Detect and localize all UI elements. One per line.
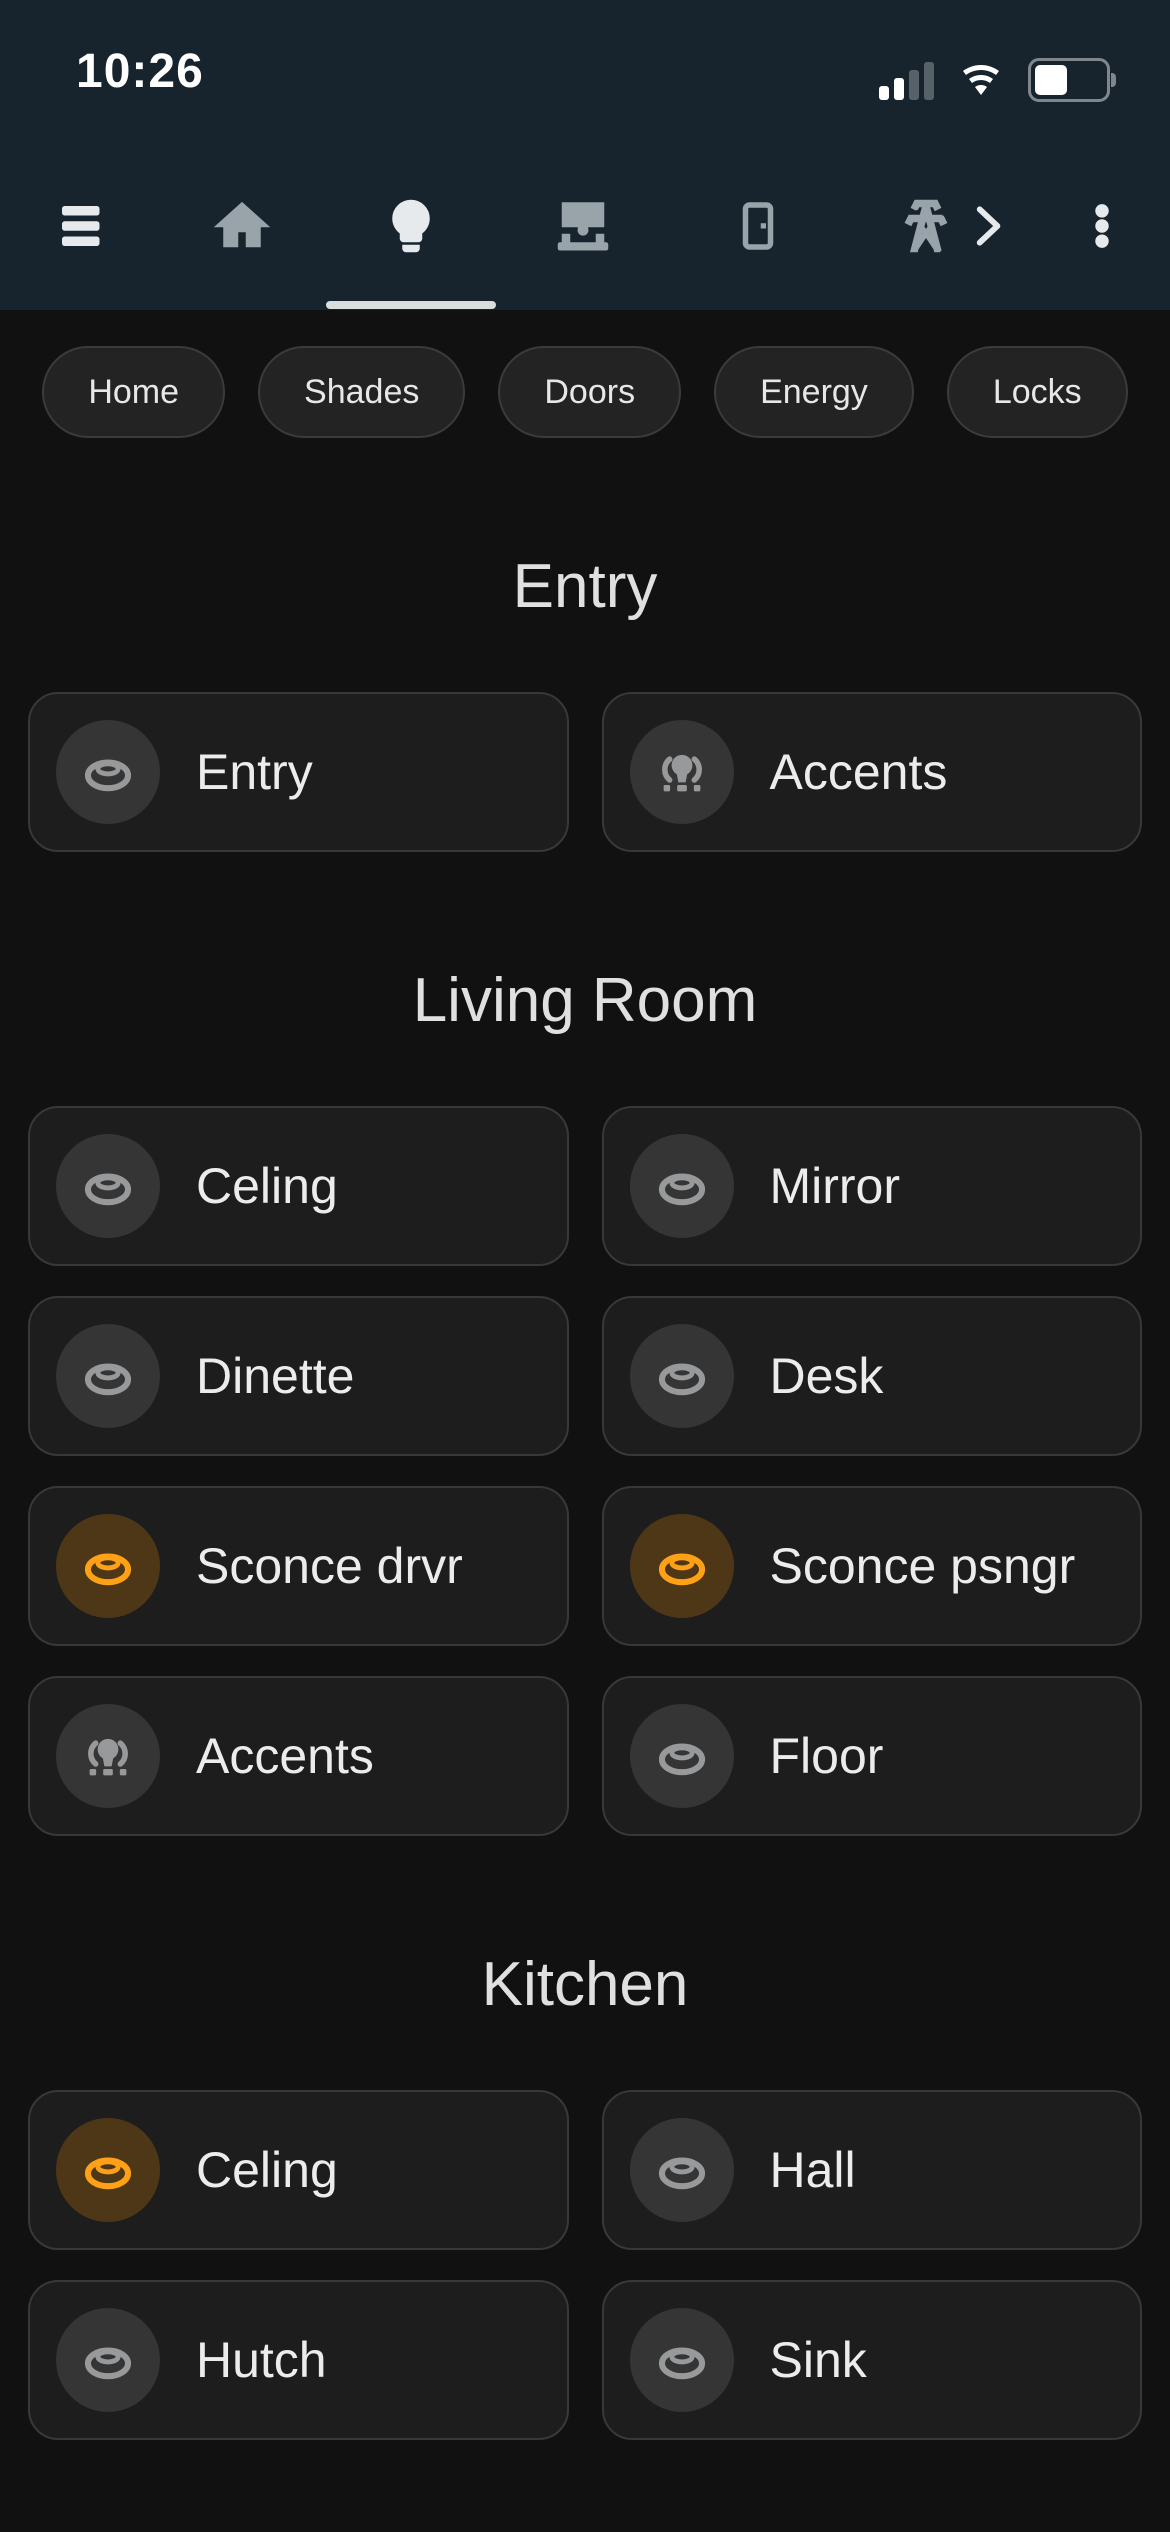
tab-shades roller-shade-icon[interactable] [553,196,613,256]
ceiling-light-icon[interactable] [630,2118,734,2222]
ceiling-light-icon[interactable] [630,2308,734,2412]
tile-name: Accents [196,1727,374,1785]
ceiling-light-icon[interactable] [630,1704,734,1808]
light-tile-celing[interactable]: Celing [28,1106,569,1266]
chip-row: HomeShadesDoorsEnergyLocks [28,346,1142,438]
tile-name: Sink [770,2331,867,2389]
tabs-scroll-more chevron-right-icon[interactable] [962,196,1012,256]
light-tile-celing[interactable]: Celing [28,2090,569,2250]
tile-name: Accents [770,743,948,801]
section-title-living-room: Living Room [0,964,1170,1038]
wifi-icon [956,60,1006,100]
sections: EntryEntryAccentsLiving RoomCelingMirror… [0,550,1170,2440]
light-tile-dinette[interactable]: Dinette [28,1296,569,1456]
hamburger-menu-icon[interactable] [57,196,117,256]
tab-lights lightbulb-icon[interactable] [381,196,441,256]
tile-name: Floor [770,1727,884,1785]
light-tile-floor[interactable]: Floor [602,1676,1143,1836]
light-tile-sink[interactable]: Sink [602,2280,1143,2440]
tile-name: Hutch [196,2331,327,2389]
light-tile-sconce-psngr[interactable]: Sconce psngr [602,1486,1143,1646]
light-tile-mirror[interactable]: Mirror [602,1106,1143,1266]
chip-home[interactable]: Home [42,346,225,438]
light-tile-accents[interactable]: Accents [28,1676,569,1836]
ceiling-light-icon[interactable] [56,1514,160,1618]
ceiling-light-icon[interactable] [56,1324,160,1428]
tab-home home-icon[interactable] [212,196,272,256]
tile-grid-entry: EntryAccents [28,692,1142,852]
ceiling-light-icon[interactable] [56,2118,160,2222]
ceiling-light-icon[interactable] [630,1134,734,1238]
light-tile-desk[interactable]: Desk [602,1296,1143,1456]
ceiling-light-icon[interactable] [630,1324,734,1428]
status-icons [879,58,1110,102]
tab-bar [0,160,1170,310]
vanity-light-icon[interactable] [56,1704,160,1808]
ceiling-light-icon[interactable] [56,720,160,824]
tab-doors door-icon[interactable] [728,196,788,256]
light-tile-entry[interactable]: Entry [28,692,569,852]
tile-name: Mirror [770,1157,901,1215]
tile-name: Hall [770,2141,856,2199]
top-navbar: 10:26 [0,0,1170,310]
tile-name: Desk [770,1347,884,1405]
tile-name: Entry [196,743,313,801]
tile-name: Celing [196,1157,338,1215]
tile-name: Celing [196,2141,338,2199]
chip-shades[interactable]: Shades [258,346,465,438]
active-tab-indicator [326,301,496,309]
tile-grid-living-room: CelingMirrorDinetteDeskSconce drvrSconce… [28,1106,1142,1836]
vanity-light-icon[interactable] [630,720,734,824]
battery-icon [1028,58,1110,102]
tile-name: Sconce psngr [770,1537,1076,1595]
tile-name: Dinette [196,1347,354,1405]
ceiling-light-icon[interactable] [630,1514,734,1618]
light-tile-sconce-drvr[interactable]: Sconce drvr [28,1486,569,1646]
overflow-menu dots-vertical-icon[interactable] [1076,196,1128,256]
chip-locks[interactable]: Locks [947,346,1128,438]
chip-energy[interactable]: Energy [714,346,914,438]
tab-energy transmission-tower-icon[interactable] [896,196,956,256]
tile-grid-kitchen: CelingHallHutchSink [28,2090,1142,2440]
status-time: 10:26 [76,44,204,99]
cellular-signal-icon [879,60,934,100]
chip-doors[interactable]: Doors [498,346,681,438]
light-tile-hutch[interactable]: Hutch [28,2280,569,2440]
ceiling-light-icon[interactable] [56,2308,160,2412]
section-title-entry: Entry [0,550,1170,624]
section-title-kitchen: Kitchen [0,1948,1170,2022]
ceiling-light-icon[interactable] [56,1134,160,1238]
light-tile-accents[interactable]: Accents [602,692,1143,852]
dashboard-content: HomeShadesDoorsEnergyLocks EntryEntryAcc… [0,310,1170,2440]
tile-name: Sconce drvr [196,1537,463,1595]
light-tile-hall[interactable]: Hall [602,2090,1143,2250]
